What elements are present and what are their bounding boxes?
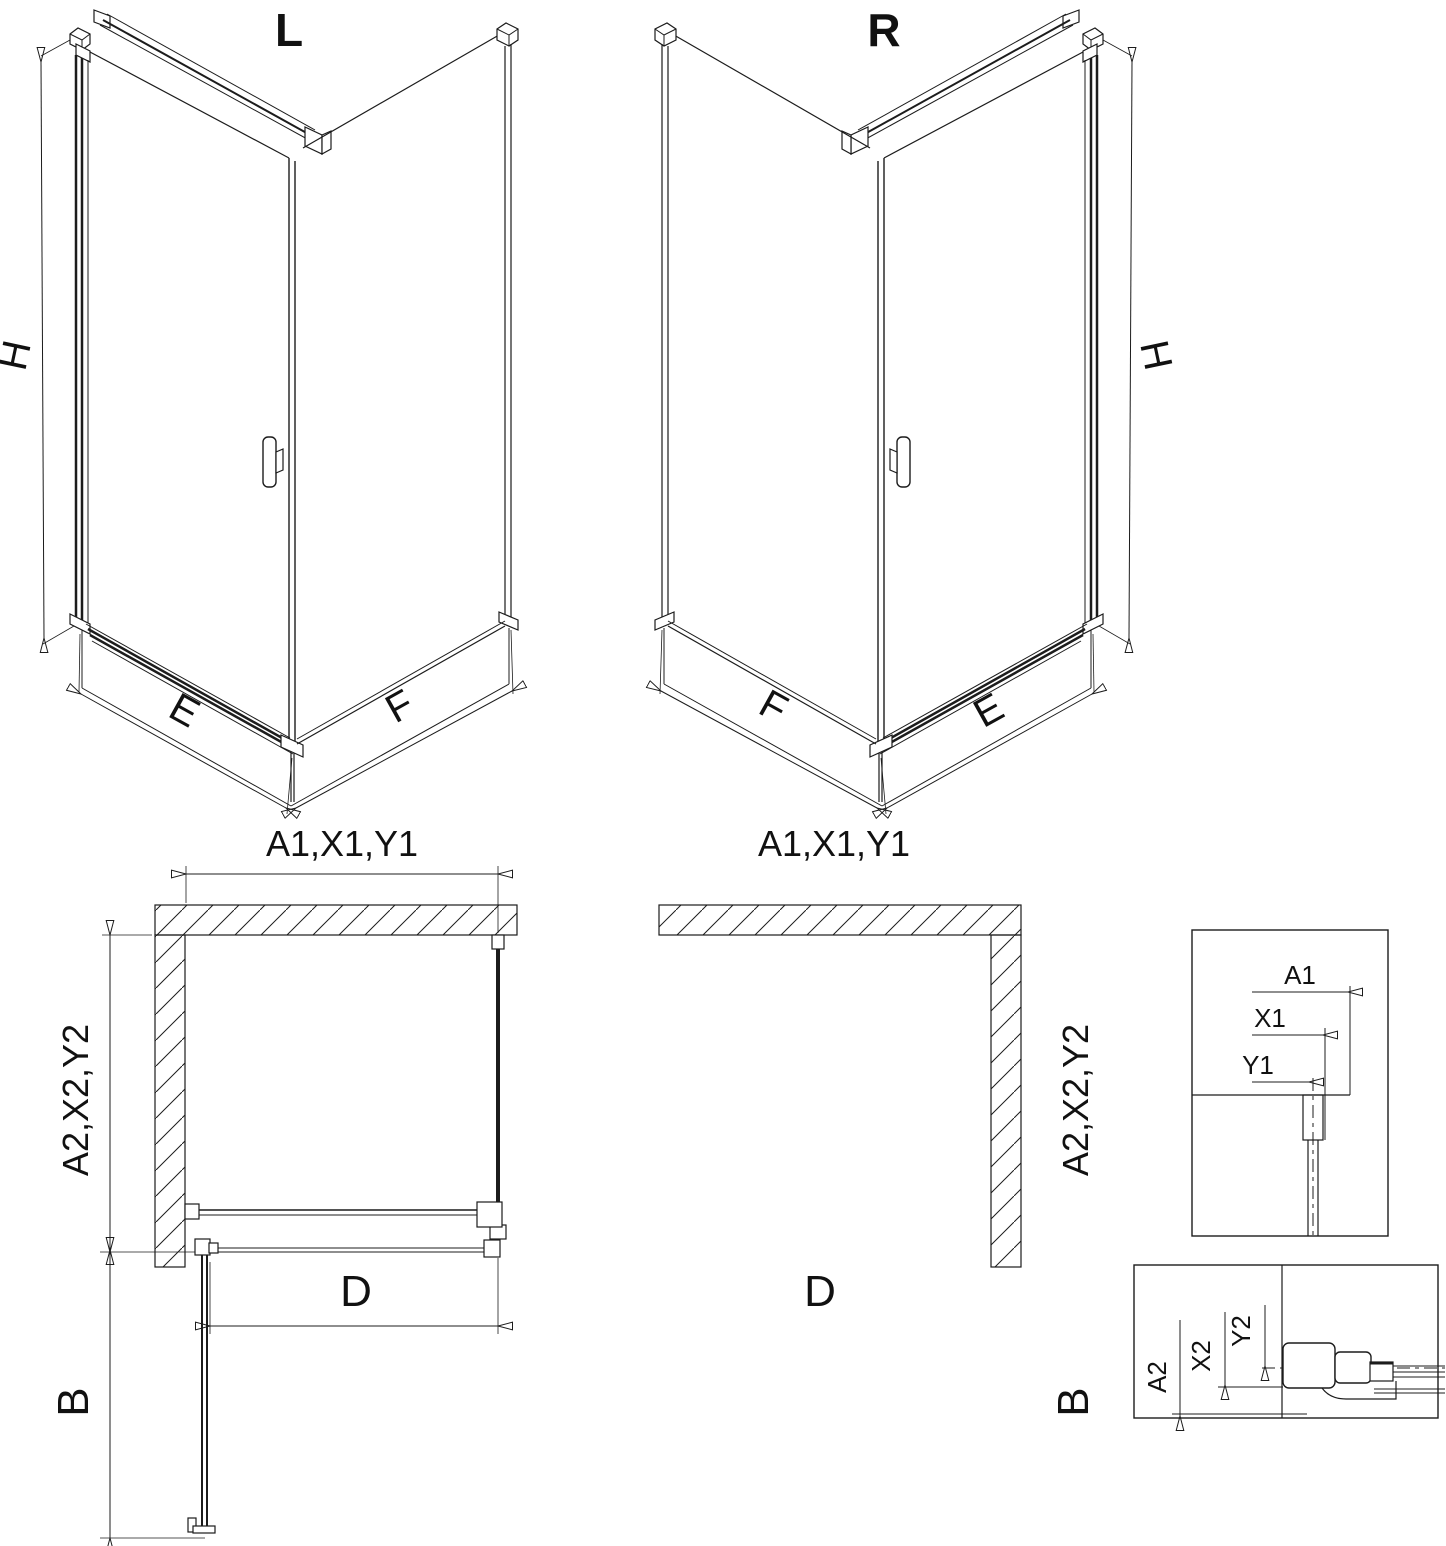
- iso-right-title: R: [867, 4, 900, 56]
- plan-right-door-projection-label: B: [1049, 1387, 1098, 1416]
- detail1-dim-y1-label: Y1: [1242, 1050, 1274, 1080]
- detail-view-hinge-profile: A2 X2 Y2: [1134, 1265, 1445, 1418]
- detail-view-wall-profile: A1 X1 Y1: [1192, 930, 1388, 1236]
- plan-right-top-dim-label: A1,X1,Y1: [758, 823, 910, 864]
- plan-left-side-dim-label: A2,X2,Y2: [55, 1024, 96, 1176]
- dim-label-height-right: H: [1131, 337, 1180, 374]
- iso-view-right: R H E F: [655, 4, 1180, 814]
- detail1-dim-x1-label: X1: [1254, 1003, 1286, 1033]
- plan-view-left: A1,X1,Y1 A2,X2,Y2 D B: [49, 823, 517, 1538]
- wall-hatch-right-plan: [659, 905, 1021, 1267]
- dim-label-side-width-right: F: [752, 681, 795, 731]
- detail2-dim-a2-label: A2: [1142, 1361, 1172, 1393]
- wall-hatch-left-plan: [155, 905, 517, 1267]
- plan-right-clear-width-label: D: [804, 1267, 836, 1316]
- dim-label-side-width-left: F: [378, 681, 421, 731]
- technical-drawing-page: L H E F R H E F A1,X1,Y1 A2,X2,Y2 D B A1…: [0, 0, 1446, 1546]
- plan-left-door-projection-label: B: [49, 1387, 98, 1416]
- detail2-dim-y2-label: Y2: [1226, 1315, 1256, 1347]
- shower-enclosure-diagram: L H E F R H E F A1,X1,Y1 A2,X2,Y2 D B A1…: [0, 0, 1446, 1546]
- plan-right-side-dim-label: A2,X2,Y2: [1055, 1024, 1096, 1176]
- plan-left-clear-width-label: D: [340, 1267, 372, 1316]
- detail1-dim-a1-label: A1: [1284, 960, 1316, 990]
- iso-view-left: L H E F: [0, 4, 518, 814]
- detail2-dim-x2-label: X2: [1186, 1340, 1216, 1372]
- iso-left-title: L: [275, 4, 303, 56]
- dim-label-height-left: H: [0, 337, 40, 374]
- plan-left-top-dim-label: A1,X1,Y1: [266, 823, 418, 864]
